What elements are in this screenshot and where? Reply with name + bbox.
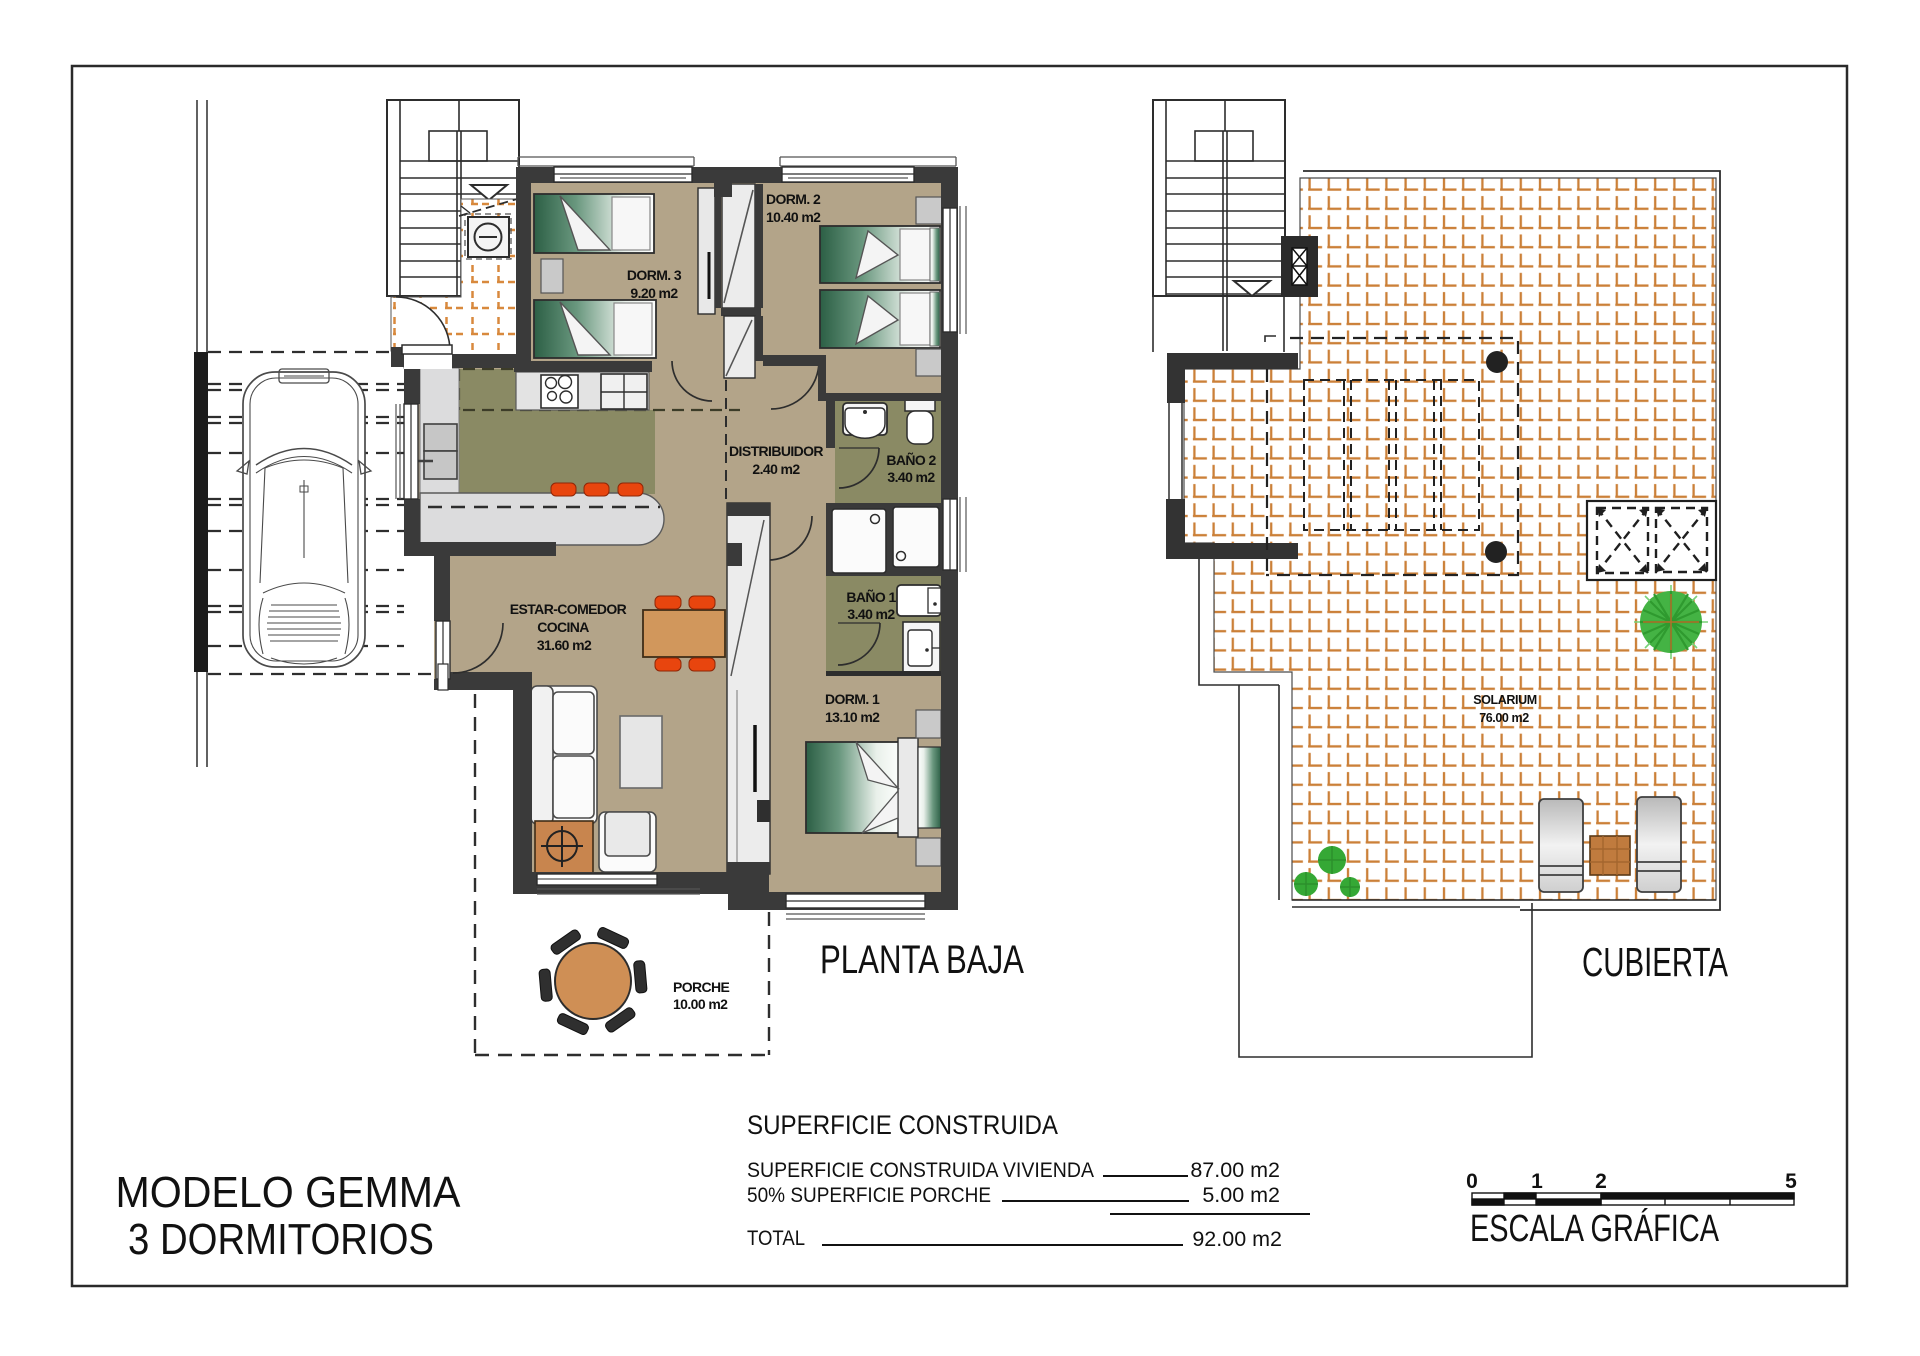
svg-text:3.40 m2: 3.40 m2 [887, 469, 935, 485]
svg-text:2.40 m2: 2.40 m2 [752, 461, 800, 477]
svg-text:DORM. 2: DORM. 2 [766, 191, 821, 207]
svg-text:31.60 m2: 31.60 m2 [537, 637, 592, 653]
svg-text:DORM. 1: DORM. 1 [825, 691, 880, 707]
svg-text:PORCHE: PORCHE [673, 979, 730, 995]
svg-text:92.00 m2: 92.00 m2 [1192, 1227, 1282, 1251]
svg-text:3 DORMITORIOS: 3 DORMITORIOS [128, 1215, 434, 1264]
svg-text:ESCALA GRÁFICA: ESCALA GRÁFICA [1470, 1207, 1719, 1250]
svg-text:76.00 m2: 76.00 m2 [1479, 711, 1529, 725]
svg-text:10.40 m2: 10.40 m2 [766, 209, 821, 225]
svg-text:SUPERFICIE CONSTRUIDA: SUPERFICIE CONSTRUIDA [747, 1110, 1058, 1140]
svg-text:50% SUPERFICIE PORCHE: 50% SUPERFICIE PORCHE [747, 1183, 991, 1207]
svg-text:DORM. 3: DORM. 3 [627, 267, 682, 283]
svg-text:TOTAL: TOTAL [747, 1226, 805, 1250]
svg-text:DISTRIBUIDOR: DISTRIBUIDOR [729, 443, 823, 459]
svg-text:SUPERFICIE CONSTRUIDA VIVIENDA: SUPERFICIE CONSTRUIDA VIVIENDA [747, 1158, 1095, 1182]
svg-text:ESTAR-COMEDOR: ESTAR-COMEDOR [510, 601, 627, 617]
svg-text:3.40 m2: 3.40 m2 [847, 606, 895, 622]
svg-text:87.00 m2: 87.00 m2 [1190, 1158, 1280, 1182]
svg-text:2: 2 [1595, 1170, 1607, 1193]
svg-text:5: 5 [1785, 1170, 1797, 1193]
svg-text:0: 0 [1466, 1170, 1478, 1193]
svg-text:10.00 m2: 10.00 m2 [673, 996, 728, 1012]
svg-text:5.00 m2: 5.00 m2 [1202, 1183, 1280, 1207]
svg-text:9.20 m2: 9.20 m2 [630, 285, 678, 301]
svg-text:MODELO GEMMA: MODELO GEMMA [116, 1168, 462, 1217]
svg-text:SOLARIUM: SOLARIUM [1473, 693, 1536, 707]
svg-text:BAÑO 1: BAÑO 1 [846, 588, 896, 605]
svg-text:BAÑO 2: BAÑO 2 [886, 451, 936, 468]
svg-text:1: 1 [1531, 1170, 1543, 1193]
svg-text:13.10 m2: 13.10 m2 [825, 709, 880, 725]
svg-text:COCINA: COCINA [537, 619, 589, 635]
svg-text:PLANTA BAJA: PLANTA BAJA [820, 938, 1024, 982]
svg-text:CUBIERTA: CUBIERTA [1582, 939, 1728, 985]
